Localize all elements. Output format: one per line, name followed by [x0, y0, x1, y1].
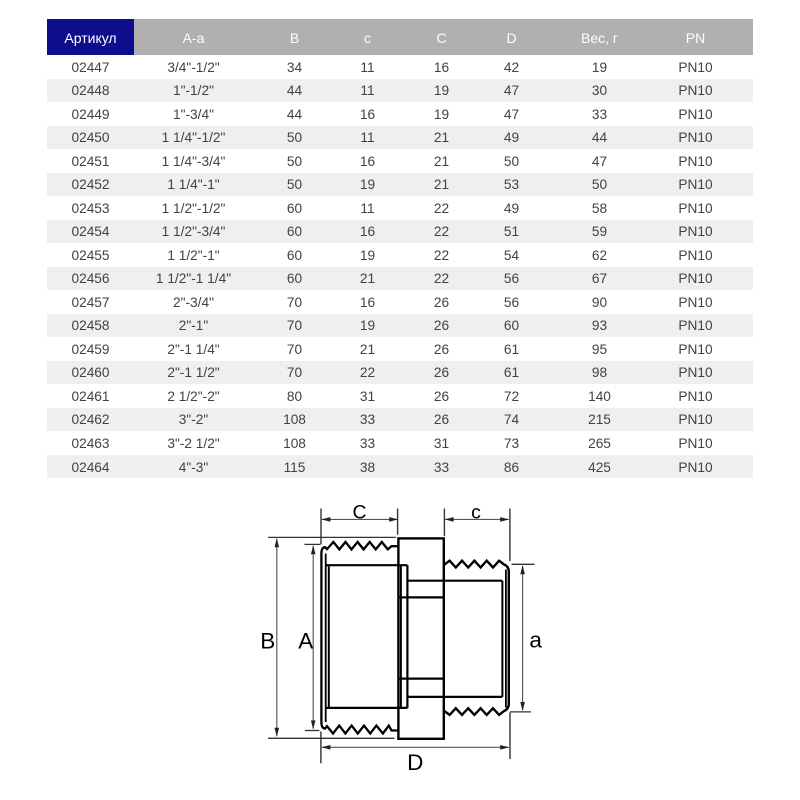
svg-text:C: C	[352, 502, 366, 524]
svg-text:c: c	[471, 502, 481, 524]
svg-text:D: D	[407, 750, 423, 775]
svg-text:a: a	[529, 628, 542, 653]
svg-text:B: B	[260, 629, 275, 654]
svg-text:A: A	[298, 629, 313, 654]
